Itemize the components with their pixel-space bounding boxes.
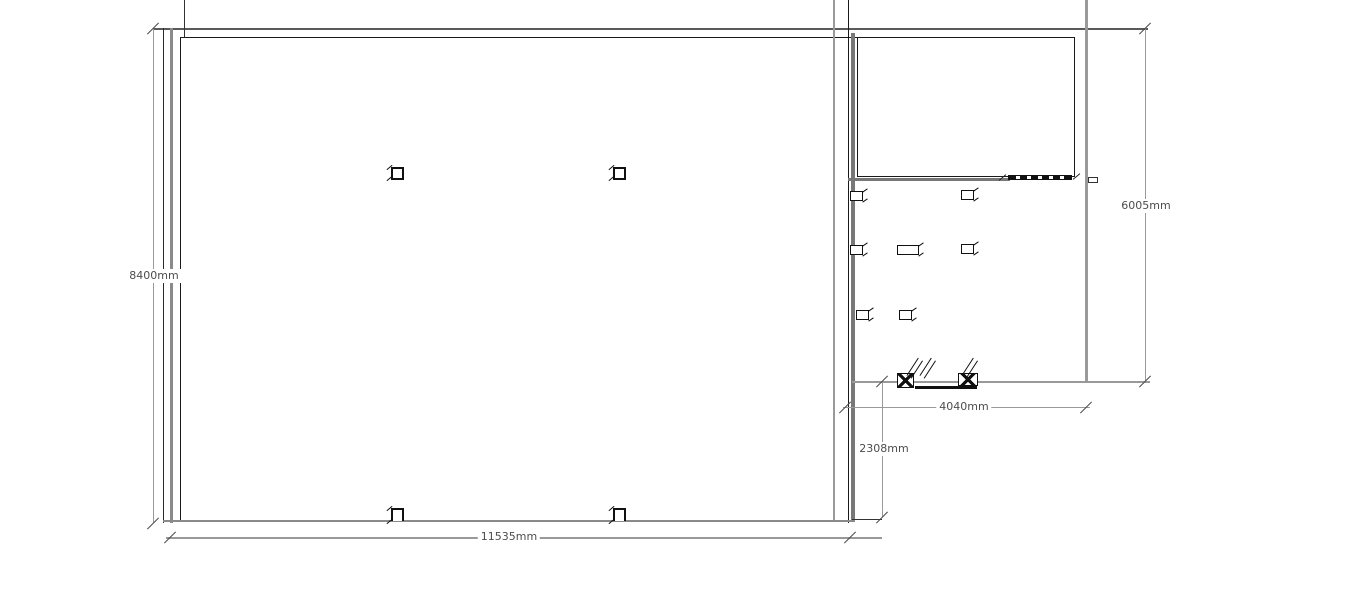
dim-label-annex-depth: 2308mm — [856, 442, 911, 456]
equipment-bench-bar — [915, 386, 977, 389]
wall-right-gray — [1085, 0, 1088, 381]
column-symbol — [613, 508, 626, 521]
chair-symbol — [856, 310, 869, 320]
chair-symbol — [961, 244, 974, 254]
column-symbol — [613, 167, 626, 180]
gridline-top-left — [184, 0, 185, 37]
wall-top-outer — [153, 28, 1148, 30]
dim-label-right: 6005mm — [1118, 199, 1173, 213]
wall-center-black — [848, 0, 849, 523]
drawing-canvas[interactable]: 8400mm 11535mm 6005mm 4040mm 2308mm — [0, 0, 1356, 600]
chair-symbol — [961, 190, 974, 200]
sliding-door — [1008, 175, 1072, 180]
column-symbol — [391, 167, 404, 180]
wall-center-gray — [833, 0, 835, 522]
dim-label-left: 8400mm — [126, 269, 181, 283]
annex-upper-room — [857, 37, 1075, 177]
dim-label-bottom: 11535mm — [478, 530, 540, 544]
chair-symbol — [899, 310, 912, 320]
annex-bottom-gray — [848, 178, 1010, 181]
chair-symbol — [850, 191, 863, 201]
dim-label-annex-width: 4040mm — [936, 400, 991, 414]
table-symbol — [897, 245, 919, 255]
annex-left-thick-wall — [851, 33, 855, 163]
column-symbol — [391, 508, 404, 521]
chair-symbol — [850, 245, 863, 255]
door-handle — [1088, 177, 1098, 183]
wall-bottom — [163, 520, 855, 522]
